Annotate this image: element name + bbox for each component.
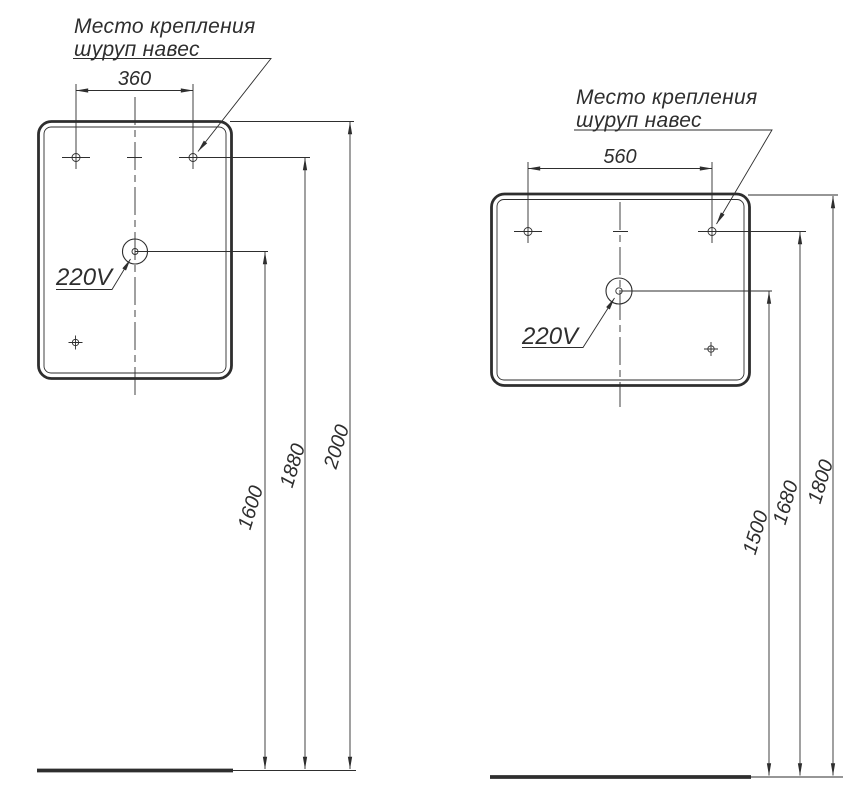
right-mounting-label-line1: Место крепления <box>576 86 758 109</box>
technical-drawing-page: 360 Место крепления шуруп навес 220V 200… <box>0 0 852 800</box>
right-view: 560 Место крепления шуруп навес 220V 180… <box>490 86 843 777</box>
left-mounting-label-leader-line <box>73 59 271 152</box>
left-mounting-label-line1: Место крепления <box>74 15 256 38</box>
right-fixing-hole-crosshair <box>704 342 718 356</box>
right-outlet-label: 220V <box>521 323 580 350</box>
mounting-diagram-canvas: 360 Место крепления шуруп навес 220V 200… <box>0 0 852 800</box>
left-outlet-label: 220V <box>55 264 114 291</box>
left-dim-outlet-height-value: 1600 <box>234 483 268 532</box>
left-hole-spacing-value: 360 <box>118 68 151 90</box>
right-mirror-outline <box>492 194 750 386</box>
right-dim-outlet-height-value: 1500 <box>739 508 773 557</box>
left-hole-spacing-extension-lines <box>76 84 193 169</box>
right-mounting-label-leader-line <box>574 130 772 224</box>
left-mounting-label-line2: шуруп навес <box>74 38 200 61</box>
left-fixing-hole-crosshair <box>69 336 83 350</box>
left-dim-top-height-value: 2000 <box>320 422 354 472</box>
right-dim-holes-height-value: 1680 <box>769 478 803 527</box>
right-mirror-inner-edge <box>497 200 744 381</box>
left-view: 360 Место крепления шуруп навес 220V 200… <box>37 15 356 771</box>
right-mounting-label-line2: шуруп навес <box>576 109 702 132</box>
right-hole-spacing-value: 560 <box>603 146 636 168</box>
